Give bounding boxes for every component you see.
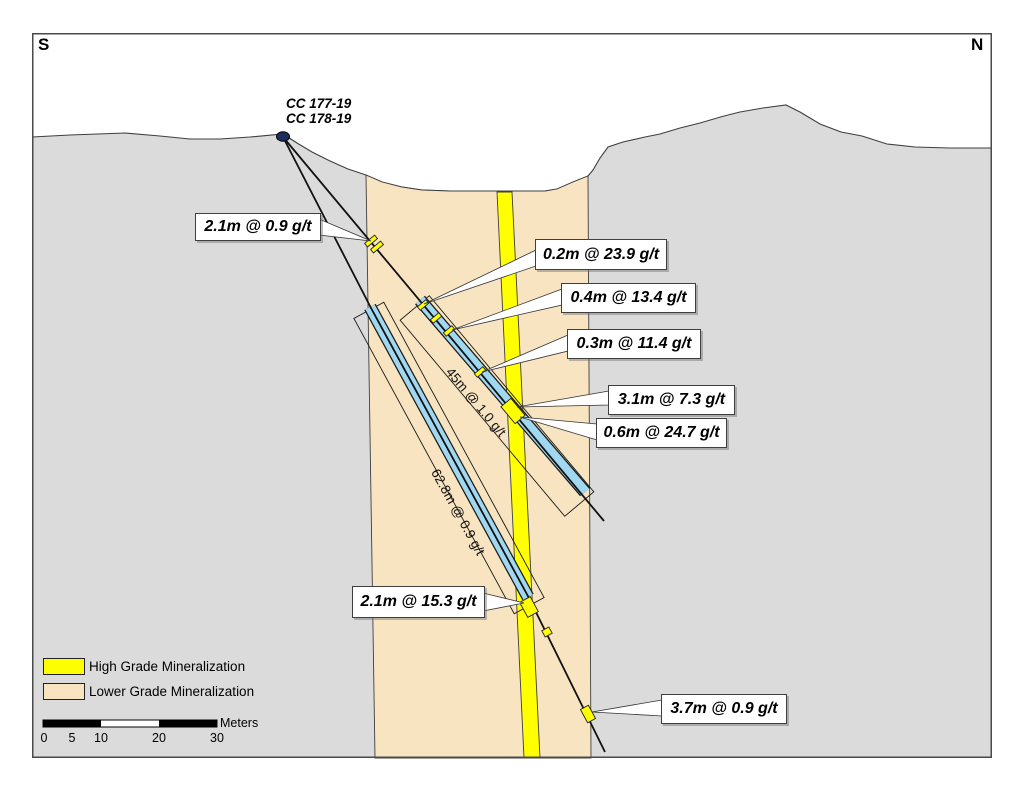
- legend-swatch-high-grade: [43, 658, 85, 675]
- callout-0.2m-23.9: 0.2m @ 23.9 g/t: [535, 239, 667, 270]
- callout-0.4m-13.4: 0.4m @ 13.4 g/t: [561, 283, 696, 313]
- legend-label-high-grade: High Grade Mineralization: [89, 659, 245, 674]
- callout-2.1m-15.3: 2.1m @ 15.3 g/t: [352, 586, 485, 618]
- collar-label-line1: CC 177-19: [286, 96, 351, 111]
- callout-3.1m-7.3: 3.1m @ 7.3 g/t: [608, 385, 735, 415]
- scalebar-tick-20: 20: [152, 731, 166, 745]
- legend-label-lower-grade: Lower Grade Mineralization: [89, 684, 254, 699]
- scalebar-tick-0: 0: [41, 731, 48, 745]
- scalebar-tick-5: 5: [69, 731, 76, 745]
- callout-2.1m-0.9: 2.1m @ 0.9 g/t: [195, 213, 321, 241]
- callout-0.6m-24.7: 0.6m @ 24.7 g/t: [596, 418, 727, 448]
- scalebar-tick-30: 30: [210, 731, 224, 745]
- collar-label: CC 177-19 CC 178-19: [286, 96, 351, 126]
- scale-bar-segment: [159, 720, 217, 727]
- scale-bar-segment: [43, 720, 101, 727]
- cross-section-figure: S N CC 177-19 CC 178-19 2.1m @ 0.9 g/t 0…: [0, 0, 1024, 791]
- scale-bar: [43, 720, 217, 727]
- orientation-label-north: N: [971, 35, 983, 55]
- scalebar-unit: Meters: [220, 716, 258, 730]
- orientation-label-south: S: [38, 35, 49, 55]
- collar-label-line2: CC 178-19: [286, 111, 351, 126]
- legend-swatch-lower-grade: [43, 683, 85, 700]
- scalebar-tick-10: 10: [94, 731, 108, 745]
- callout-3.7m-0.9: 3.7m @ 0.9 g/t: [661, 694, 787, 724]
- collar-dot: [277, 132, 290, 142]
- callout-0.3m-11.4: 0.3m @ 11.4 g/t: [567, 329, 701, 359]
